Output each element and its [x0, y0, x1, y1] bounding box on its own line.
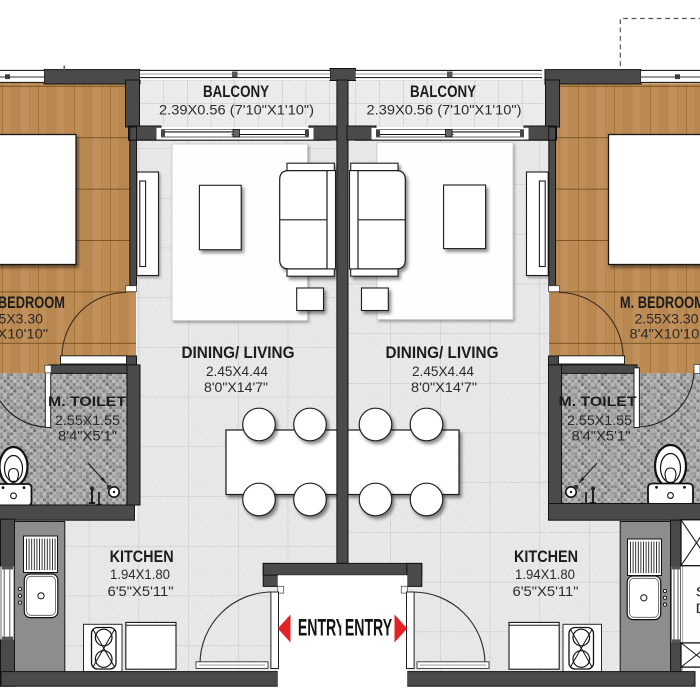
svg-text:1.94X1.80: 1.94X1.80 — [515, 567, 575, 582]
svg-text:8'4"X10'10": 8'4"X10'10" — [630, 326, 700, 341]
svg-text:8'0"X14'7": 8'0"X14'7" — [204, 380, 268, 395]
svg-text:2.45X4.44: 2.45X4.44 — [412, 364, 474, 379]
svg-text:ENTRY: ENTRY — [298, 614, 345, 641]
svg-text:BALCONY: BALCONY — [203, 82, 270, 101]
svg-text:KITCHEN: KITCHEN — [514, 547, 578, 566]
svg-text:ENTRY: ENTRY — [345, 614, 392, 641]
svg-text:KITCHEN: KITCHEN — [110, 547, 174, 566]
svg-text:2.55X3.30: 2.55X3.30 — [635, 311, 699, 326]
svg-text:2.55X1.55: 2.55X1.55 — [567, 413, 632, 428]
svg-text:6'5"X5'11": 6'5"X5'11" — [108, 584, 174, 599]
svg-text:M. BEDROOM: M. BEDROOM — [0, 293, 65, 312]
svg-text:M. TOILET: M. TOILET — [559, 393, 637, 409]
svg-text:DINING/ LIVING: DINING/ LIVING — [386, 343, 499, 362]
svg-text:2.55X1.55: 2.55X1.55 — [55, 413, 120, 428]
svg-text:2.39X0.56 (7'10"X1'10"): 2.39X0.56 (7'10"X1'10") — [159, 102, 314, 117]
svg-text:8'0"X14'7": 8'0"X14'7" — [411, 380, 477, 395]
svg-text:1.94X1.80: 1.94X1.80 — [110, 567, 170, 582]
svg-text:8'4"X5'1": 8'4"X5'1" — [572, 428, 631, 443]
svg-text:6'5"X5'11": 6'5"X5'11" — [513, 584, 579, 599]
svg-text:DINING/ LIVING: DINING/ LIVING — [182, 343, 295, 362]
svg-text:BALCONY: BALCONY — [410, 82, 477, 101]
svg-text:D: D — [696, 601, 700, 616]
svg-text:2.39X0.56 (7'10"X1'10"): 2.39X0.56 (7'10"X1'10") — [367, 102, 522, 117]
svg-text:8'4"X10'10": 8'4"X10'10" — [0, 326, 48, 341]
svg-text:S: S — [696, 585, 700, 600]
svg-text:2.55X3.30: 2.55X3.30 — [0, 311, 43, 326]
svg-text:8'4"X5'1": 8'4"X5'1" — [58, 428, 117, 443]
svg-text:2.45X4.44: 2.45X4.44 — [206, 364, 268, 379]
svg-text:M. BEDROOM: M. BEDROOM — [620, 293, 700, 312]
svg-text:M. TOILET: M. TOILET — [48, 393, 126, 409]
